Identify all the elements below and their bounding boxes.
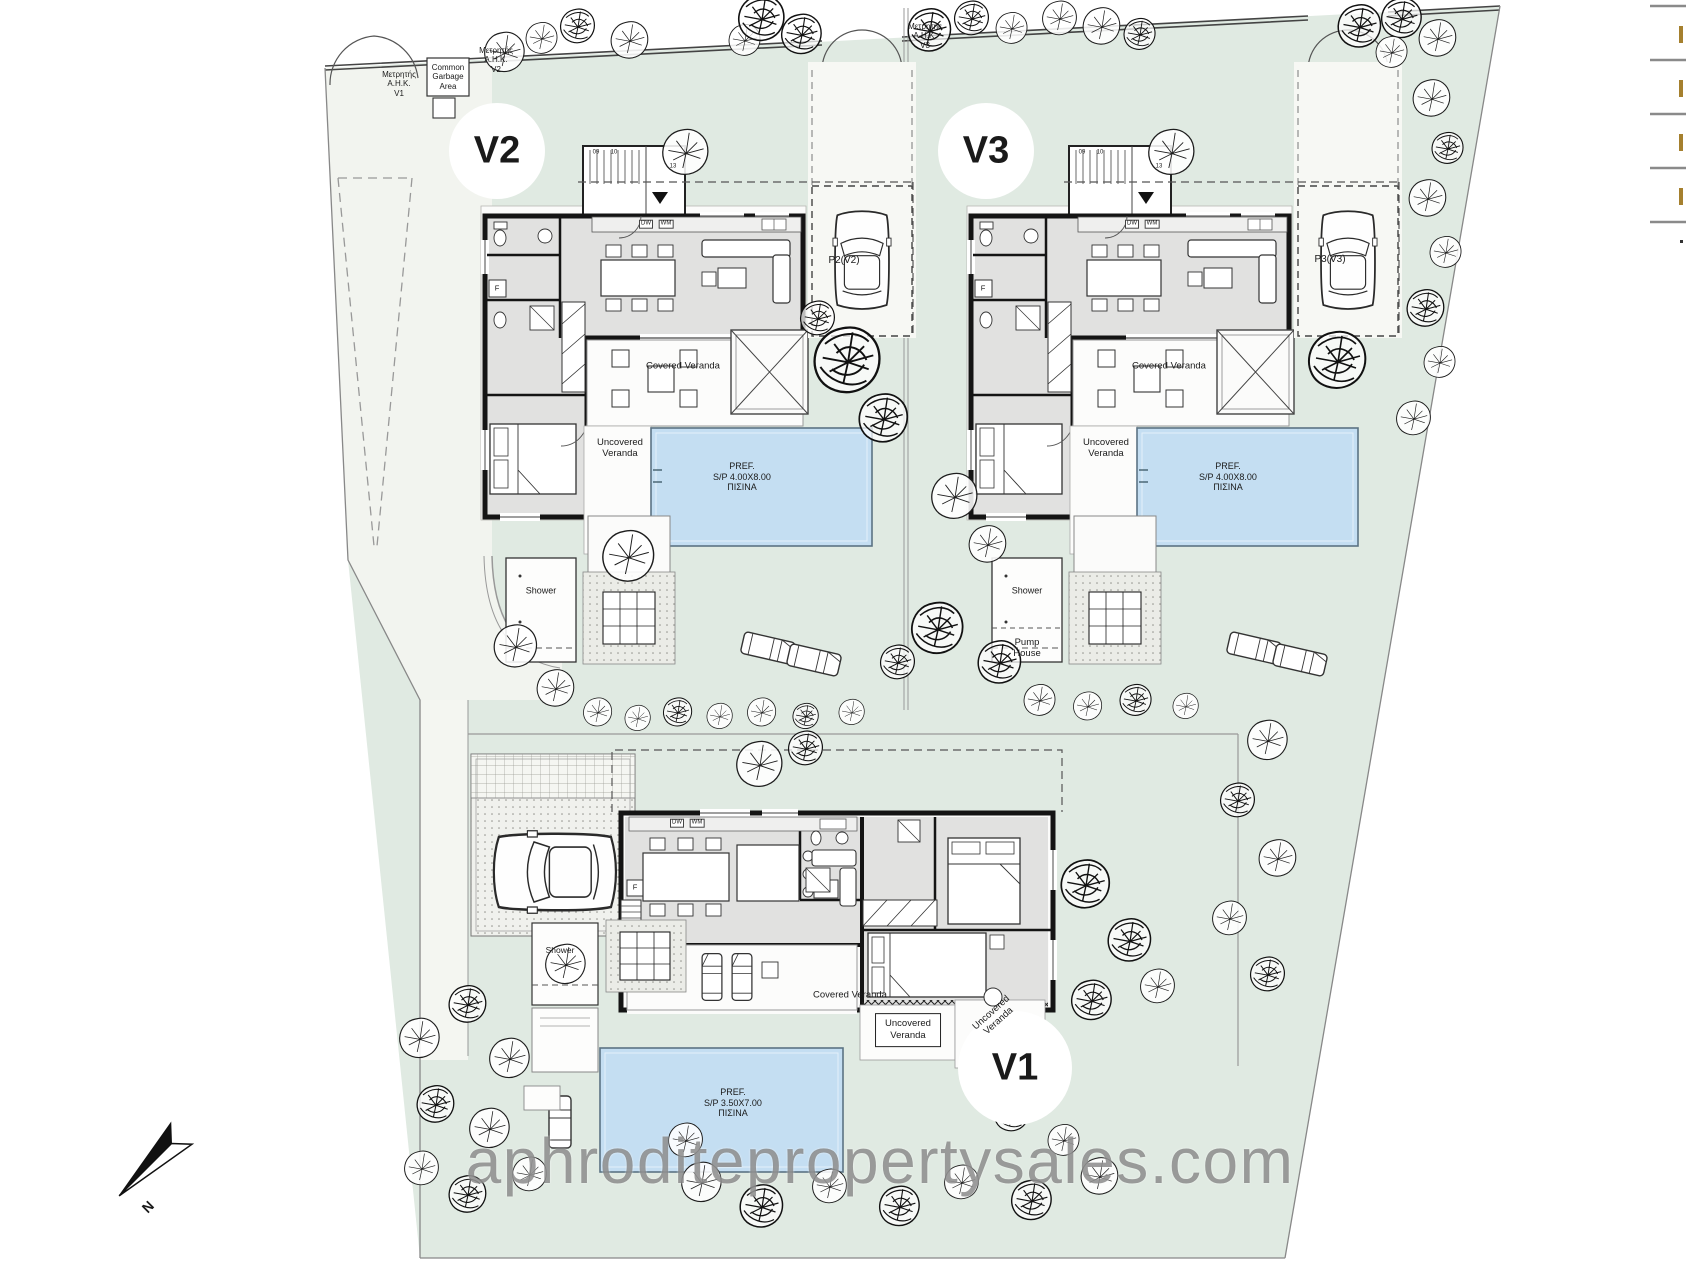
villa-v1-circle [958,1011,1072,1125]
meter-cabinet [433,98,455,118]
villa-v2-circle [449,103,545,199]
north-arrow-icon [109,1123,192,1206]
garbage-area-box [427,58,469,96]
pool-v1 [600,1048,843,1172]
legend-table-cut [1650,6,1686,243]
site-plan: V2V3V1Μετρητής A.H.K. V1Common Garbage A… [0,0,1686,1265]
villa-v3-circle [938,103,1034,199]
site-plan-drawing [0,0,1686,1265]
